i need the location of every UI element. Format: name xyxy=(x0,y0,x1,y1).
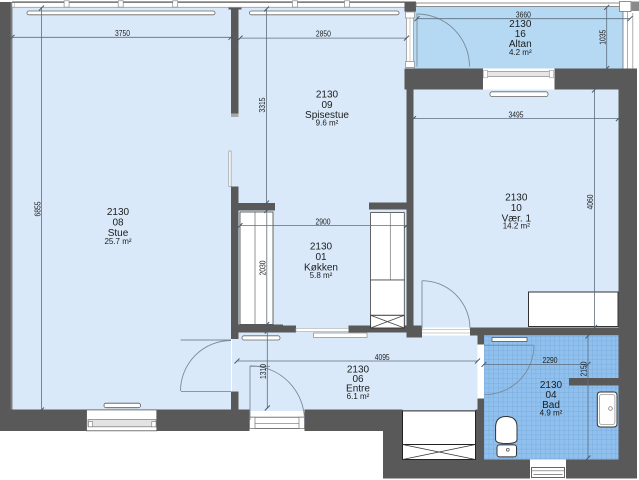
svg-text:2150: 2150 xyxy=(580,361,589,376)
svg-text:1035: 1035 xyxy=(598,29,607,44)
svg-text:4.2 m²: 4.2 m² xyxy=(509,48,532,57)
svg-text:9.6 m²: 9.6 m² xyxy=(316,119,339,128)
svg-text:5.8 m²: 5.8 m² xyxy=(310,271,333,280)
svg-text:2130: 2130 xyxy=(310,242,333,253)
svg-text:10: 10 xyxy=(511,203,523,214)
svg-text:2290: 2290 xyxy=(543,356,558,365)
svg-text:6.1 m²: 6.1 m² xyxy=(347,392,370,401)
svg-text:2030: 2030 xyxy=(259,260,268,275)
svg-text:2900: 2900 xyxy=(316,218,331,227)
svg-text:4060: 4060 xyxy=(586,194,595,209)
svg-text:3315: 3315 xyxy=(258,97,267,112)
svg-text:4.9 m²: 4.9 m² xyxy=(540,409,563,418)
svg-text:3495: 3495 xyxy=(509,110,524,119)
svg-text:2130: 2130 xyxy=(505,193,528,204)
svg-text:1310: 1310 xyxy=(259,364,268,379)
svg-text:3660: 3660 xyxy=(516,11,531,20)
svg-text:2850: 2850 xyxy=(316,30,331,39)
svg-text:2130: 2130 xyxy=(107,207,130,218)
svg-text:6855: 6855 xyxy=(33,201,42,216)
svg-text:01: 01 xyxy=(315,252,327,263)
svg-text:25.7 m²: 25.7 m² xyxy=(104,237,131,246)
svg-text:3750: 3750 xyxy=(115,29,130,38)
svg-text:4095: 4095 xyxy=(375,353,390,362)
svg-text:08: 08 xyxy=(112,218,124,229)
svg-text:14.2 m²: 14.2 m² xyxy=(503,221,530,230)
